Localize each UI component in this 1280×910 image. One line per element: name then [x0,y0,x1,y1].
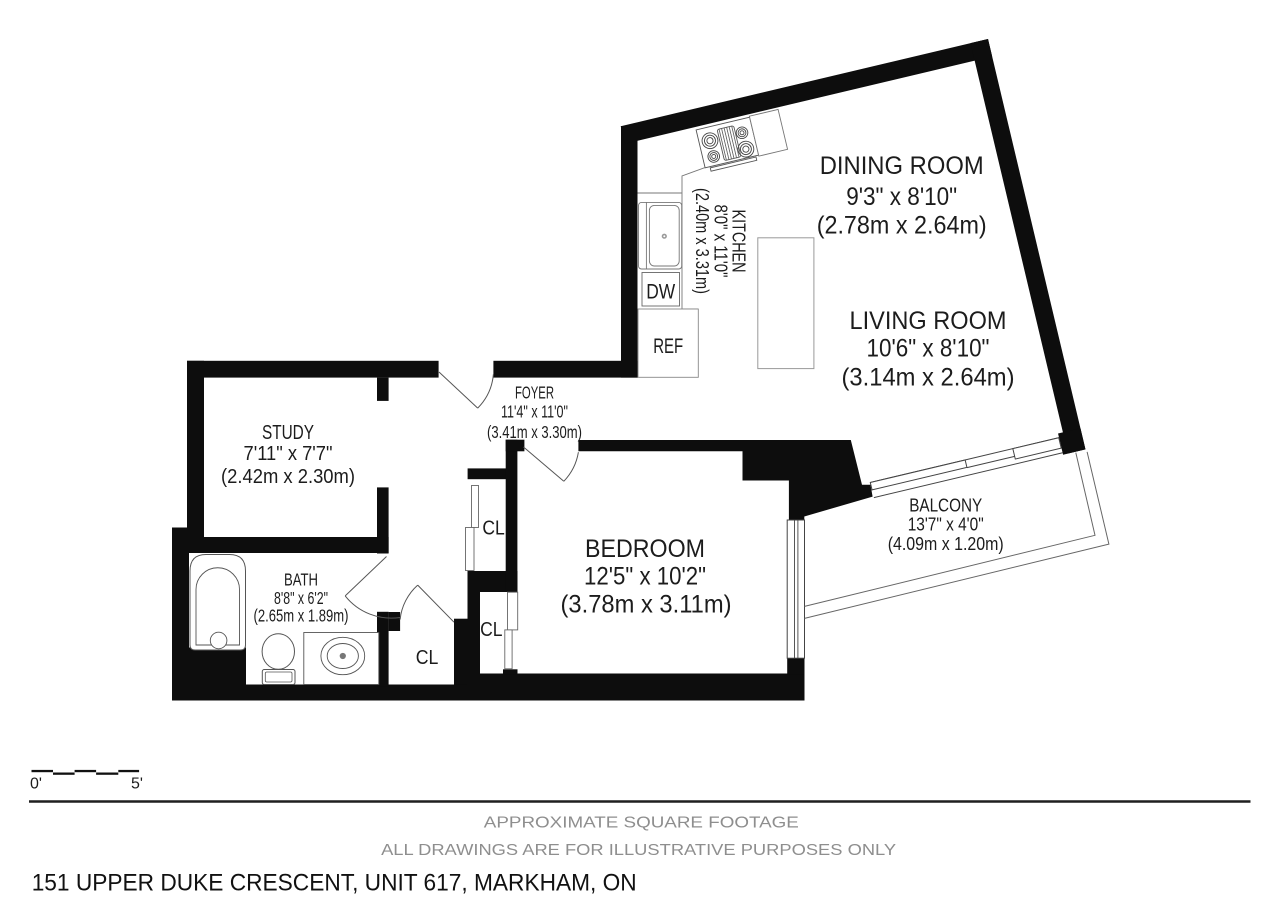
svg-text:(2.42m x 2.30m): (2.42m x 2.30m) [221,465,355,488]
svg-text:ALL DRAWINGS ARE FOR ILLUSTRAT: ALL DRAWINGS ARE FOR ILLUSTRATIVE PURPOS… [381,842,896,859]
svg-text:CL: CL [480,619,502,641]
svg-text:CL: CL [482,518,504,540]
svg-text:(3.41m x 3.30m): (3.41m x 3.30m) [487,422,582,442]
svg-text:10'6" x 8'10": 10'6" x 8'10" [867,335,990,363]
svg-text:APPROXIMATE SQUARE FOOTAGE: APPROXIMATE SQUARE FOOTAGE [484,815,799,832]
svg-text:12'5" x 10'2": 12'5" x 10'2" [584,563,706,591]
svg-text:REF: REF [653,335,683,358]
svg-text:(2.40m x 3.31m): (2.40m x 3.31m) [692,188,713,294]
svg-text:11'4" x 11'0": 11'4" x 11'0" [501,402,568,422]
svg-text:151 UPPER DUKE CRESCENT, UNIT: 151 UPPER DUKE CRESCENT, UNIT 617, MARKH… [32,870,637,897]
svg-text:BALCONY: BALCONY [909,495,982,515]
svg-text:DW: DW [646,281,675,304]
svg-text:CL: CL [416,647,439,669]
svg-text:FOYER: FOYER [515,383,554,403]
svg-text:(3.14m x 2.64m): (3.14m x 2.64m) [842,364,1015,392]
svg-text:BEDROOM: BEDROOM [585,535,705,563]
svg-text:LIVING ROOM: LIVING ROOM [850,307,1007,335]
svg-text:(2.65m x 1.89m): (2.65m x 1.89m) [254,606,349,626]
svg-text:BATH: BATH [284,569,318,589]
svg-text:DINING ROOM: DINING ROOM [820,152,984,180]
svg-text:(2.78m x 2.64m): (2.78m x 2.64m) [817,212,987,240]
svg-text:7'11" x 7'7": 7'11" x 7'7" [244,442,333,465]
svg-text:13'7" x 4'0": 13'7" x 4'0" [908,515,984,535]
svg-text:5': 5' [131,776,143,793]
svg-text:STUDY: STUDY [262,421,314,444]
svg-text:0': 0' [30,776,42,793]
svg-text:(3.78m x 3.11m): (3.78m x 3.11m) [561,591,732,619]
svg-text:9'3" x 8'10": 9'3" x 8'10" [846,183,957,211]
svg-text:(4.09m x 1.20m): (4.09m x 1.20m) [888,534,1004,554]
